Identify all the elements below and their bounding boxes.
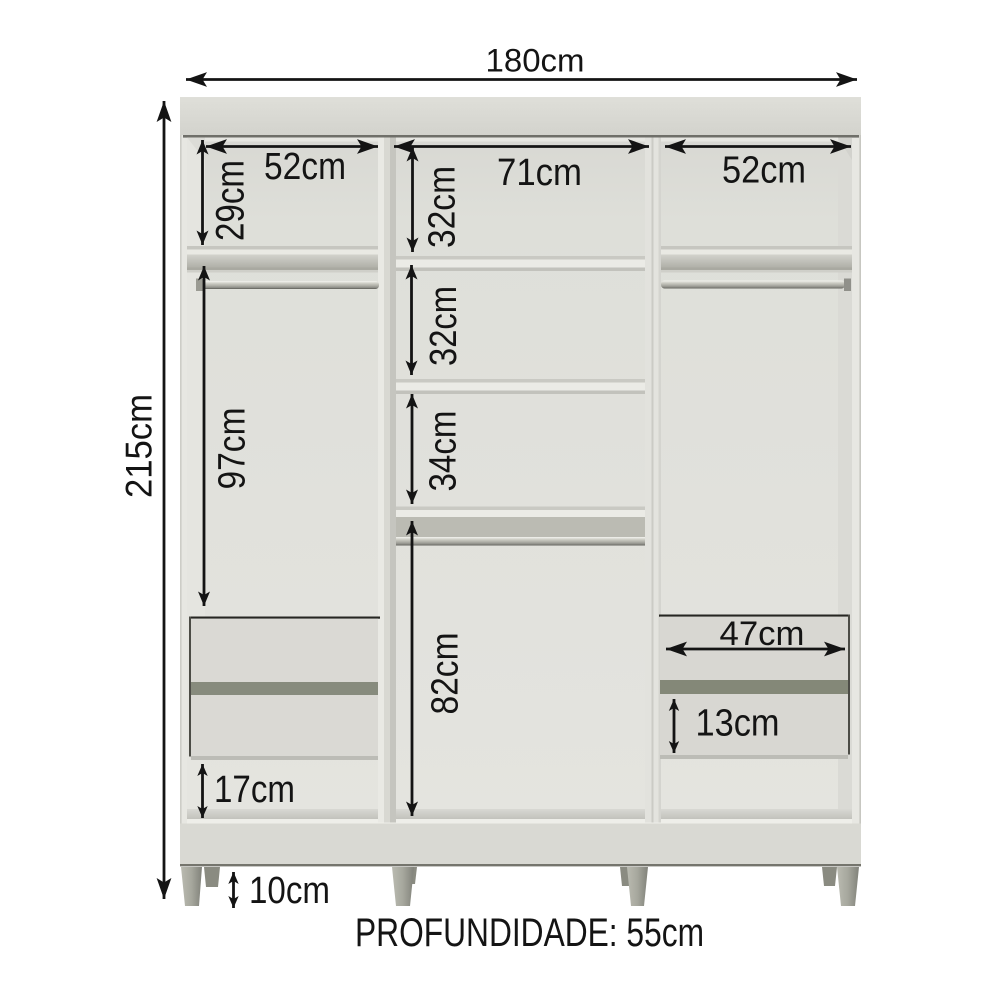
svg-text:52cm: 52cm <box>264 146 346 188</box>
svg-text:PROFUNDIDADE: 55cm: PROFUNDIDADE: 55cm <box>355 911 704 955</box>
svg-text:215cm: 215cm <box>119 394 160 498</box>
svg-text:13cm: 13cm <box>696 703 780 745</box>
svg-text:52cm: 52cm <box>722 150 806 192</box>
svg-text:97cm: 97cm <box>212 408 254 490</box>
svg-text:71cm: 71cm <box>497 152 582 194</box>
svg-text:10cm: 10cm <box>249 870 330 912</box>
svg-text:47cm: 47cm <box>720 615 805 653</box>
svg-text:17cm: 17cm <box>214 769 295 811</box>
svg-text:180cm: 180cm <box>486 43 585 79</box>
svg-text:32cm: 32cm <box>422 166 464 248</box>
svg-text:34cm: 34cm <box>423 411 465 492</box>
svg-text:82cm: 82cm <box>425 633 467 715</box>
svg-text:29cm: 29cm <box>209 160 253 241</box>
svg-text:32cm: 32cm <box>423 286 465 366</box>
